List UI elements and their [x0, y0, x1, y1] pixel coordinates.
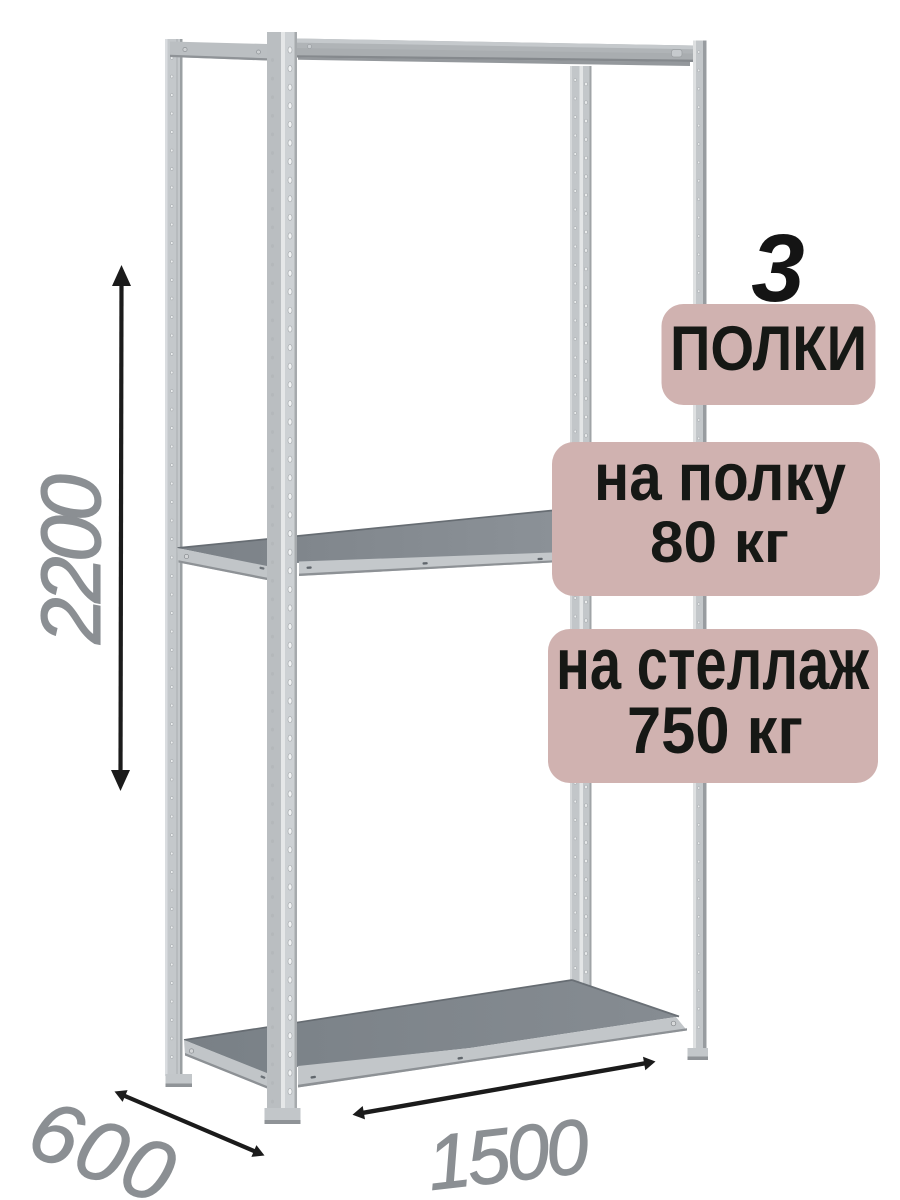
svg-text:80 кг: 80 кг: [650, 510, 789, 575]
svg-text:750 кг: 750 кг: [627, 693, 803, 767]
svg-text:на полку: на полку: [594, 440, 846, 515]
svg-text:ПОЛКИ: ПОЛКИ: [670, 314, 867, 384]
svg-text:2200: 2200: [24, 474, 118, 645]
svg-text:1500: 1500: [423, 1103, 594, 1200]
